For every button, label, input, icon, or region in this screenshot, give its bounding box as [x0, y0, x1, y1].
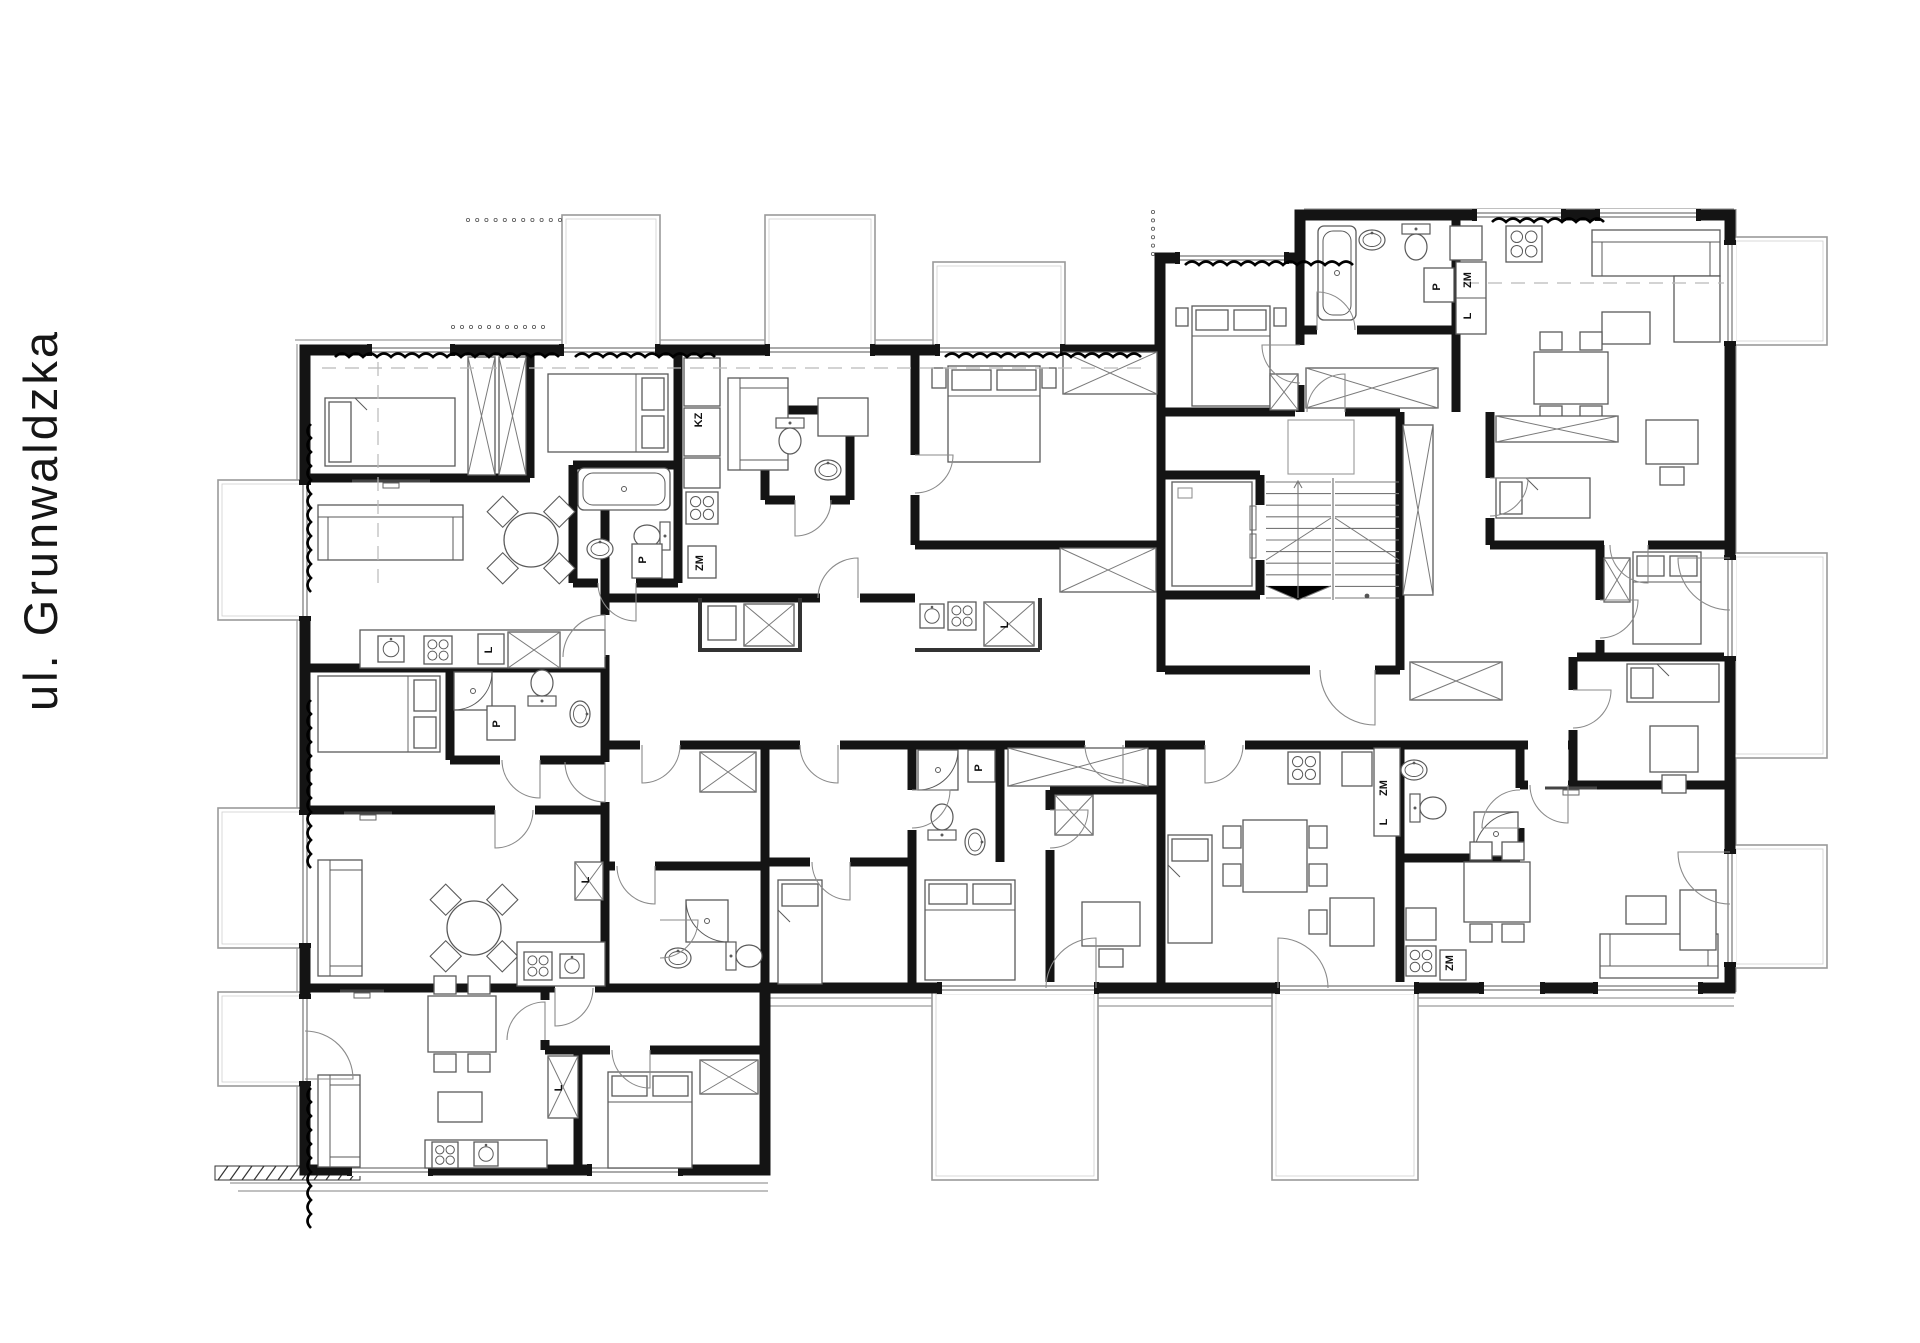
street-label: ul. Grunwaldzka — [14, 329, 67, 711]
appliance-label: KZ — [693, 412, 705, 427]
appliance-label: P — [637, 556, 649, 563]
appliance-label: P — [1431, 283, 1443, 290]
plan-graphics — [215, 209, 1827, 1228]
appliance-label: L — [1378, 818, 1390, 825]
appliance-label: ZM — [1444, 955, 1456, 971]
floor-plan-drawing: ul. Grunwaldzka PPPPZMZMZMZMLLLLLLKZ — [0, 0, 1920, 1343]
appliance-label: L — [999, 621, 1011, 628]
appliance-label: ZM — [1378, 780, 1390, 796]
appliance-label: ZM — [694, 555, 706, 571]
appliance-label: ZM — [1462, 272, 1474, 288]
appliance-label: L — [553, 1084, 565, 1091]
appliance-label: L — [580, 876, 592, 883]
appliance-label: L — [483, 646, 495, 653]
appliance-label: L — [1462, 312, 1474, 319]
appliance-label: P — [491, 720, 503, 727]
stair-core-layer — [1172, 420, 1399, 600]
appliance-label: P — [973, 764, 985, 771]
floor-plan-page: ul. Grunwaldzka PPPPZMZMZMZMLLLLLLKZ — [0, 0, 1920, 1343]
